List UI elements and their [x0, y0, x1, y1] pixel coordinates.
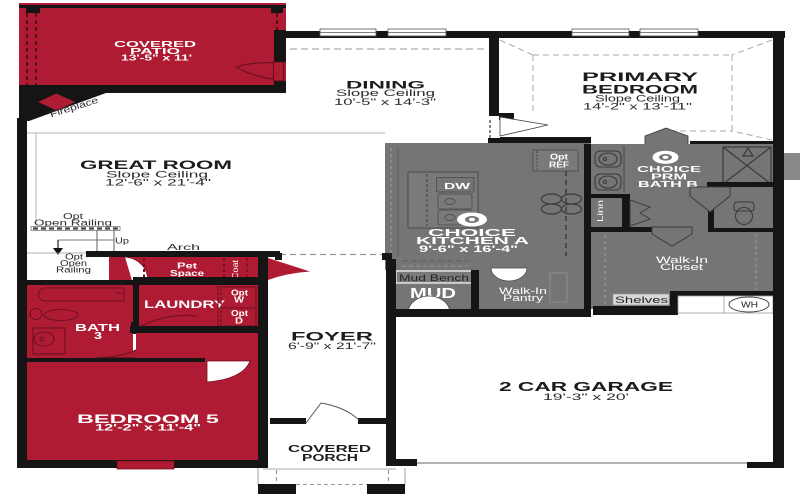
svg-text:3: 3: [94, 330, 102, 342]
svg-text:Railing: Railing: [56, 266, 91, 275]
svg-text:Coat: Coat: [231, 259, 240, 279]
svg-text:Arch: Arch: [167, 242, 201, 252]
svg-text:REF: REF: [549, 161, 569, 170]
svg-text:PORCH: PORCH: [302, 453, 358, 464]
svg-text:12'-6" x 21'-4": 12'-6" x 21'-4": [105, 178, 211, 188]
svg-text:Linn: Linn: [596, 200, 605, 222]
svg-text:WH: WH: [741, 301, 758, 310]
svg-text:Mud Bench: Mud Bench: [399, 273, 469, 284]
svg-text:13'-5" x 11': 13'-5" x 11': [121, 54, 192, 63]
svg-text:BATH B: BATH B: [638, 179, 698, 189]
svg-text:D: D: [235, 317, 243, 326]
svg-text:W: W: [234, 296, 245, 305]
svg-text:Closet: Closet: [660, 262, 704, 272]
svg-text:Open Railing: Open Railing: [34, 219, 112, 228]
svg-text:19'-3" x 20': 19'-3" x 20': [543, 392, 630, 402]
svg-text:9'-6" x 16'-4": 9'-6" x 16'-4": [419, 244, 518, 254]
svg-text:Shelves: Shelves: [615, 295, 668, 306]
svg-text:LAUNDRY: LAUNDRY: [144, 299, 226, 311]
svg-text:10'-5" x 14'-3": 10'-5" x 14'-3": [334, 97, 436, 107]
svg-text:DW: DW: [444, 181, 472, 191]
svg-text:12'-2" x 11'-4": 12'-2" x 11'-4": [95, 423, 201, 433]
svg-text:Space: Space: [170, 268, 204, 278]
svg-text:Pantry: Pantry: [503, 293, 544, 303]
svg-text:Up: Up: [115, 236, 129, 246]
svg-text:6'-9" x 21'-7": 6'-9" x 21'-7": [288, 341, 376, 351]
svg-text:14'-2" x 13'-11": 14'-2" x 13'-11": [583, 102, 692, 112]
